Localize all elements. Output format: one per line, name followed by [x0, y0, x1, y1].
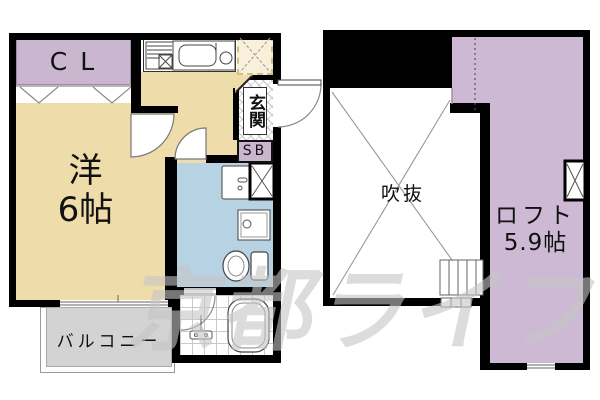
loft-area-upper — [452, 37, 583, 113]
room-name: 洋 — [28, 152, 143, 191]
wall-f1-right-lower — [273, 127, 281, 363]
entrance-door-icon — [278, 80, 321, 127]
wall-loft-bottom — [482, 363, 590, 370]
wall-sanitary-bath — [165, 287, 281, 295]
kitchen-counter — [143, 39, 236, 72]
wall-room-sanitary — [165, 157, 177, 300]
wall-f1-bottom-left — [9, 300, 60, 307]
loft-label: ロフト 5.9帖 — [488, 203, 583, 257]
wall-f1-top — [9, 33, 281, 40]
wall-room-kitchen — [131, 39, 141, 106]
wall-bath-bottom — [172, 355, 281, 363]
wall-bath-left — [172, 295, 180, 363]
wall-f2-mass-topleft — [323, 30, 452, 88]
loft-size: 5.9帖 — [488, 230, 583, 257]
wall-room-hall — [131, 106, 178, 113]
closet-label: CL — [16, 47, 131, 76]
wall-genkan-left — [233, 88, 239, 140]
room-label: 洋 6帖 — [28, 152, 143, 230]
void-label: 吹抜 — [353, 179, 453, 206]
floorplan-canvas: CL 洋 6帖 玄関 SB バルコニー 吹抜 ロフト 5.9帖 京都ライフ — [0, 0, 600, 400]
wall-void-bottom — [323, 298, 490, 306]
shoe-box-label: SB — [237, 140, 273, 163]
kitchen-hall — [131, 72, 237, 163]
sanitary-room — [177, 163, 273, 288]
wall-f1-left — [9, 33, 16, 307]
loft-name: ロフト — [488, 203, 583, 230]
refrigerator-space — [237, 35, 273, 75]
wall-f2-right — [583, 30, 590, 370]
balcony-label: バルコニー — [48, 327, 170, 352]
bathroom — [180, 295, 273, 355]
entrance-label: 玄関 — [243, 87, 267, 135]
wall-loft-step — [450, 103, 490, 113]
wall-genkan-top — [248, 75, 281, 80]
room-size: 6帖 — [28, 191, 143, 230]
closet-door-strip — [16, 85, 131, 104]
